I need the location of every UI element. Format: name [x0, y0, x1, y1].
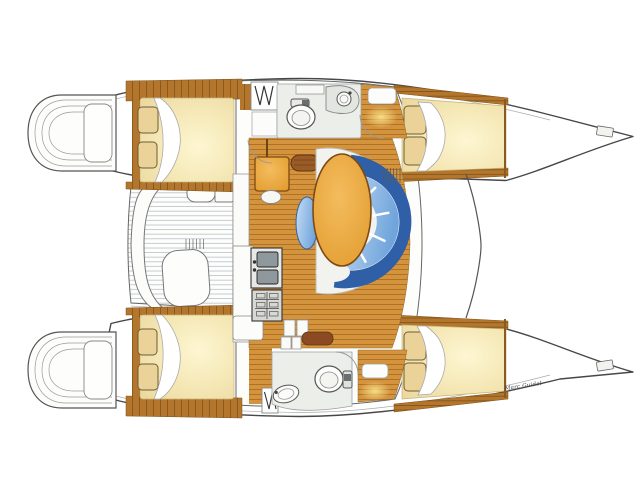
saloon-table — [313, 154, 371, 266]
galley-stove — [252, 290, 282, 321]
port-transom-steps — [28, 95, 116, 171]
cockpit-cushion — [161, 248, 211, 307]
nav-stool — [261, 191, 281, 204]
sink-basin — [257, 252, 278, 267]
swim-platform — [84, 104, 112, 162]
deck-plan-drawing: Marc Guidel — [0, 0, 640, 480]
head-cabinet — [302, 332, 333, 345]
galley-counter — [233, 246, 253, 320]
nav-seat — [291, 155, 319, 171]
vanity-sink — [326, 86, 359, 114]
starboard-transom-steps — [28, 332, 116, 408]
locker — [252, 112, 277, 136]
floor-sliver-aft-port — [240, 84, 251, 110]
light-glow — [364, 106, 398, 128]
sink-basin — [257, 270, 278, 284]
light-glow — [359, 381, 391, 401]
port-companionway-steps — [251, 82, 278, 110]
faucet — [253, 268, 256, 271]
pillow — [138, 107, 158, 133]
faucet — [253, 260, 256, 263]
deck-hatch — [368, 88, 396, 104]
deck-hatch — [362, 364, 388, 378]
locker — [292, 337, 301, 349]
catamaran-deck-plan: Marc Guidel — [0, 0, 640, 480]
faucet — [348, 91, 351, 94]
cockpit — [128, 176, 233, 312]
bow-locker — [596, 126, 613, 137]
head-counter — [296, 85, 324, 94]
galley-module — [284, 320, 295, 336]
pillow — [138, 142, 157, 168]
locker — [281, 337, 291, 349]
chart-table — [255, 157, 289, 191]
